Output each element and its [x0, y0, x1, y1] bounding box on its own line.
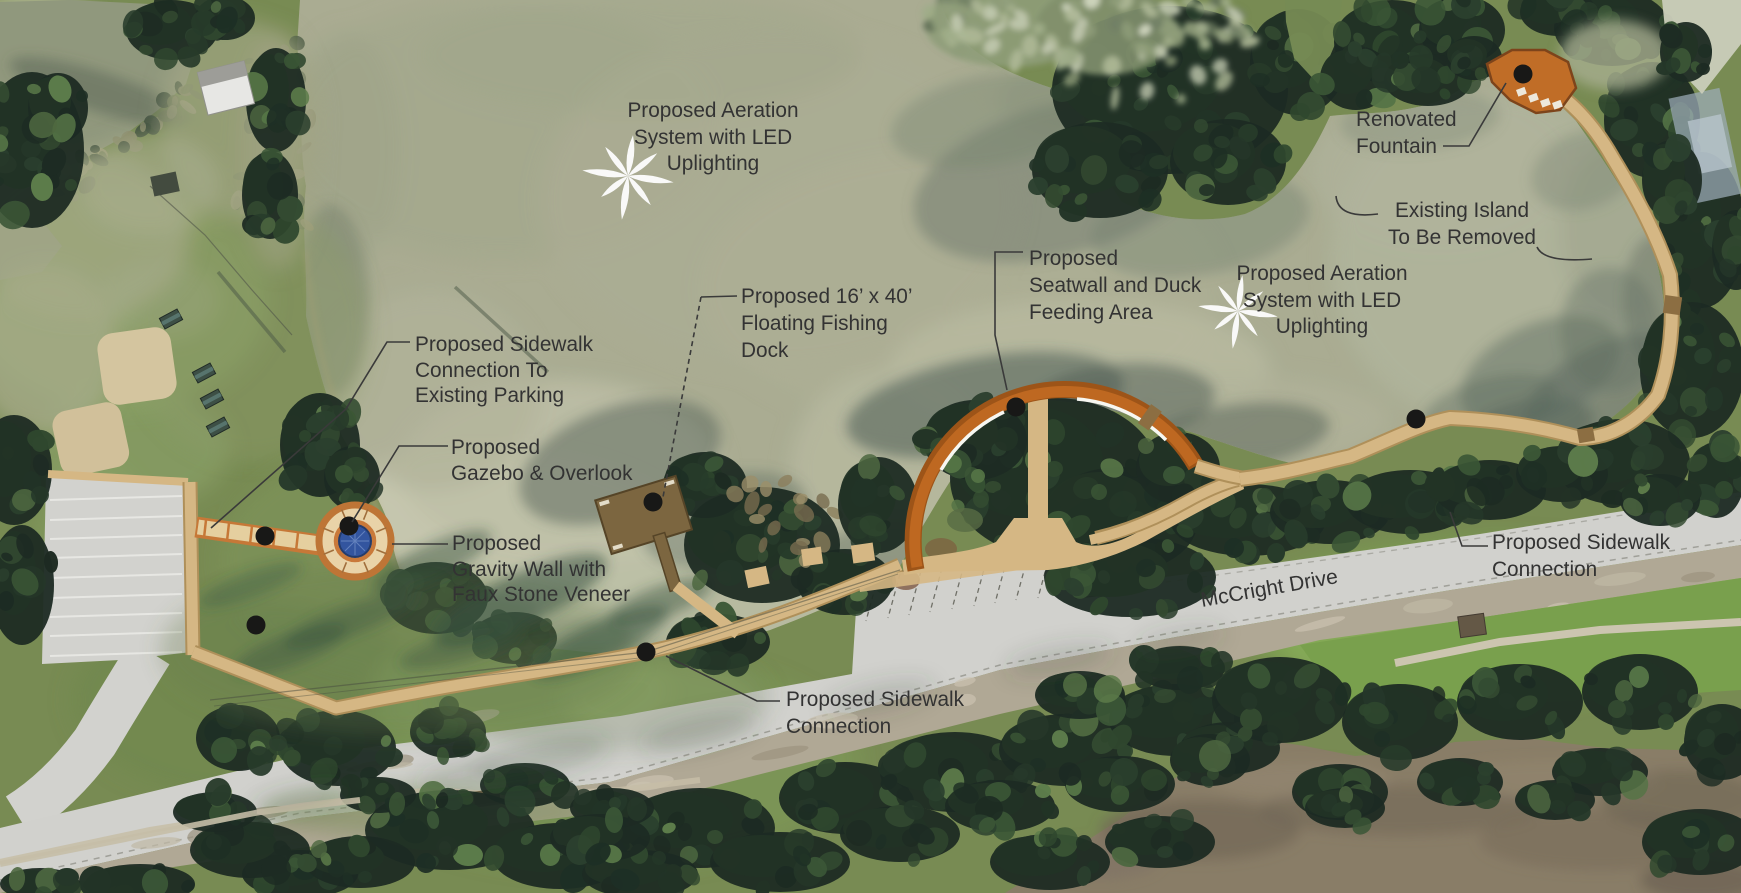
svg-text:Feeding Area: Feeding Area: [1029, 301, 1153, 324]
svg-text:Connection: Connection: [786, 715, 891, 738]
svg-text:Proposed Sidewalk: Proposed Sidewalk: [786, 688, 965, 711]
svg-text:Uplighting: Uplighting: [1276, 315, 1369, 338]
svg-text:Fountain: Fountain: [1356, 135, 1437, 158]
svg-text:Proposed Aeration: Proposed Aeration: [627, 99, 798, 122]
svg-text:Proposed Aeration: Proposed Aeration: [1236, 262, 1407, 285]
svg-text:Proposed: Proposed: [452, 532, 541, 555]
svg-text:Existing Parking: Existing Parking: [415, 384, 564, 407]
svg-text:Proposed Sidewalk: Proposed Sidewalk: [415, 333, 594, 356]
svg-text:Connection: Connection: [1492, 558, 1597, 581]
svg-text:Dock: Dock: [741, 339, 789, 362]
svg-text:Gazebo & Overlook: Gazebo & Overlook: [451, 462, 633, 485]
svg-text:System with LED: System with LED: [634, 126, 792, 149]
svg-text:Seatwall and Duck: Seatwall and Duck: [1029, 274, 1202, 297]
svg-text:Floating Fishing: Floating Fishing: [741, 312, 888, 335]
svg-text:Proposed: Proposed: [451, 436, 540, 459]
svg-text:Uplighting: Uplighting: [667, 152, 760, 175]
svg-text:Proposed: Proposed: [1029, 247, 1118, 270]
svg-text:Faux Stone Veneer: Faux Stone Veneer: [452, 583, 630, 606]
svg-text:System with LED: System with LED: [1243, 289, 1401, 312]
svg-text:Renovated: Renovated: [1356, 108, 1457, 131]
svg-text:Proposed Sidewalk: Proposed Sidewalk: [1492, 531, 1671, 554]
svg-text:Gravity Wall with: Gravity Wall with: [452, 558, 606, 581]
svg-text:Proposed 16’ x 40’: Proposed 16’ x 40’: [741, 285, 913, 308]
svg-text:Existing Island: Existing Island: [1395, 199, 1529, 222]
svg-text:Connection To: Connection To: [415, 359, 548, 382]
svg-text:To Be Removed: To Be Removed: [1388, 226, 1536, 249]
